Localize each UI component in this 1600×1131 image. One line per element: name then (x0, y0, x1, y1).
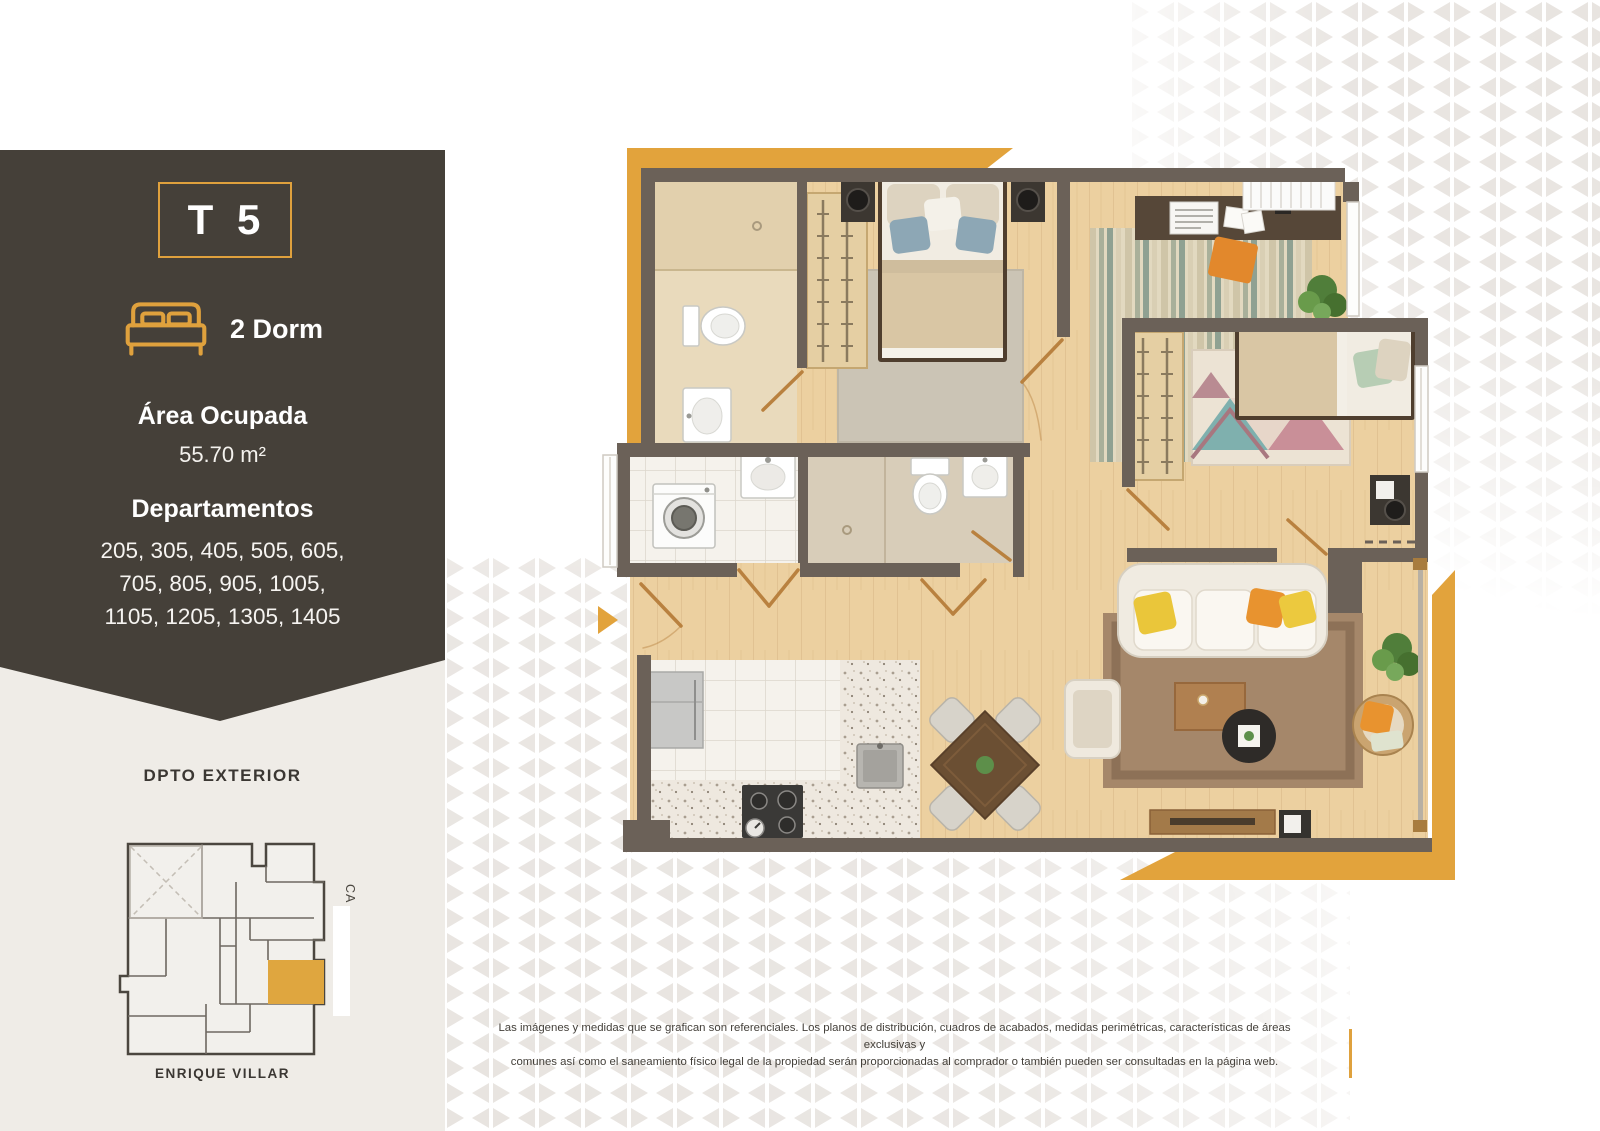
disclaimer-line1: Las imágenes y medidas que se grafican s… (472, 1020, 1317, 1054)
departments-line: 205, 305, 405, 505, 605, (0, 534, 445, 567)
armchair (1065, 680, 1120, 758)
dining-area (927, 695, 1044, 834)
bedrooms-label: 2 Dorm (230, 314, 323, 345)
disclaimer-line2: comunes así como el saneamiento físico l… (472, 1054, 1317, 1071)
key-plan: CA (100, 826, 380, 1064)
building-outline (120, 844, 324, 1054)
tower-label: T 5 (188, 196, 267, 244)
departments-line: 705, 805, 905, 1005, (0, 567, 445, 600)
departments-list: 205, 305, 405, 505, 605, 705, 805, 905, … (0, 534, 445, 633)
sofa (1118, 564, 1327, 657)
single-bed (1235, 328, 1415, 420)
bed-icon (122, 298, 210, 360)
info-panel: T 5 2 Dorm Área Ocupada 55.70 m² Departa… (0, 150, 445, 722)
disclaimer: Las imágenes y medidas que se grafican s… (472, 1020, 1317, 1071)
basket-chair (1353, 695, 1413, 755)
brochure-page: T 5 2 Dorm Área Ocupada 55.70 m² Departa… (0, 0, 1600, 1131)
bedroom2-closet (1130, 332, 1183, 480)
area-value: 55.70 m² (0, 442, 445, 468)
glass-wall (1418, 564, 1423, 826)
highlighted-unit (268, 960, 324, 1004)
street-strip (333, 906, 350, 1016)
area-title: Área Ocupada (0, 402, 445, 431)
orange-divider (1349, 1029, 1352, 1078)
toilet-tank (911, 458, 949, 475)
street-bottom-label: ENRIQUE VILLAR (0, 1066, 445, 1081)
floor-plan (585, 140, 1475, 890)
toilet-tank (683, 306, 699, 346)
departments-line: 1105, 1205, 1305, 1405 (0, 600, 445, 633)
kitchen-sink (857, 743, 903, 788)
table-plant (976, 756, 994, 774)
key-plan-title: DPTO EXTERIOR (0, 766, 445, 786)
laptop (1170, 202, 1218, 234)
yellow-pillow (1132, 590, 1177, 635)
entrance-arrow-icon (598, 606, 618, 634)
street-right-label: CA (343, 884, 357, 903)
tower-badge: T 5 (158, 182, 292, 258)
stove (742, 785, 803, 838)
departments-title: Departamentos (0, 495, 445, 524)
double-bed (878, 175, 1007, 362)
